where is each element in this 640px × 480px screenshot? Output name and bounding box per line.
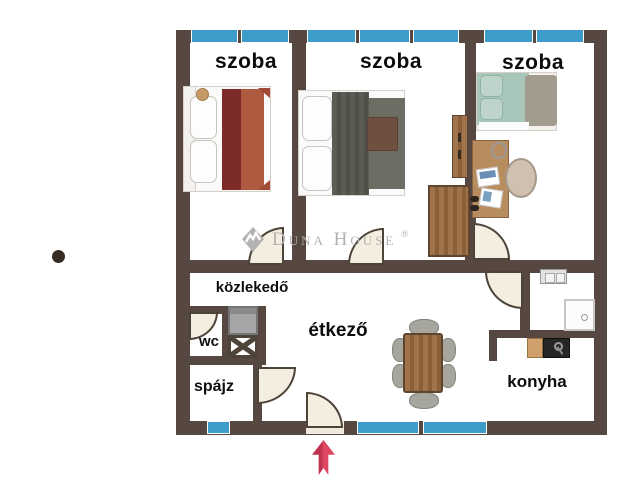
label-room3: szoba — [487, 51, 579, 75]
duna-house-logo-icon — [241, 226, 265, 253]
teddy-bear-icon — [196, 88, 209, 101]
shoes-icon — [470, 196, 479, 202]
entrance-arrow-icon — [312, 440, 335, 475]
label-hallway: közlekedő — [207, 279, 297, 296]
dining-chair — [409, 392, 439, 409]
window-room3-pane2 — [536, 29, 584, 43]
window-pantry — [207, 421, 230, 434]
label-dining: étkező — [292, 320, 384, 342]
label-pantry: spájz — [188, 378, 240, 396]
washbasin-icon — [540, 269, 567, 284]
dining-table — [403, 333, 443, 393]
registered-mark: ® — [401, 229, 408, 239]
label-wc: wc — [195, 333, 223, 350]
brand-watermark: Duna House ® — [241, 226, 410, 253]
door-entrance — [306, 392, 343, 428]
bed-room1 — [183, 86, 271, 192]
wall-shaft-right — [258, 306, 266, 365]
window-room1-pane2 — [241, 29, 289, 43]
nightstand-room2 — [452, 115, 468, 178]
wall-kitchen-left-stub — [489, 337, 497, 361]
floorplan-canvas: szoba szoba szoba közlekedő wc spájz étk… — [0, 0, 640, 480]
door-room3 — [473, 223, 510, 260]
shower-tray-icon — [564, 299, 595, 331]
shoes-icon — [470, 205, 479, 211]
dot-marker-icon — [52, 250, 65, 263]
label-kitchen: konyha — [505, 372, 569, 392]
window-room2-pane2 — [359, 29, 410, 43]
door-pantry — [257, 367, 296, 404]
cutting-board — [527, 338, 543, 358]
window-dining-pane1 — [357, 421, 419, 434]
utility-shaft — [228, 306, 258, 335]
window-room1-pane1 — [191, 29, 238, 43]
wall-outer-right — [594, 30, 607, 435]
door-bathroom — [485, 271, 523, 309]
bed-room2 — [298, 90, 405, 196]
bed-room3 — [476, 72, 557, 131]
kitchen-sink-icon — [543, 338, 570, 358]
wardrobe-room2 — [428, 185, 470, 257]
chair-room3 — [505, 158, 537, 198]
label-room1: szoba — [200, 50, 292, 74]
window-room2-pane1 — [307, 29, 356, 43]
window-dining-pane2 — [423, 421, 487, 434]
label-room2: szoba — [345, 50, 437, 74]
shaft-x-cross-icon — [228, 335, 258, 358]
watermark-text: Duna House — [272, 229, 396, 251]
window-room2-pane3 — [413, 29, 459, 43]
wall-bathroom-bottom — [489, 330, 594, 338]
window-room3-pane1 — [484, 29, 533, 43]
